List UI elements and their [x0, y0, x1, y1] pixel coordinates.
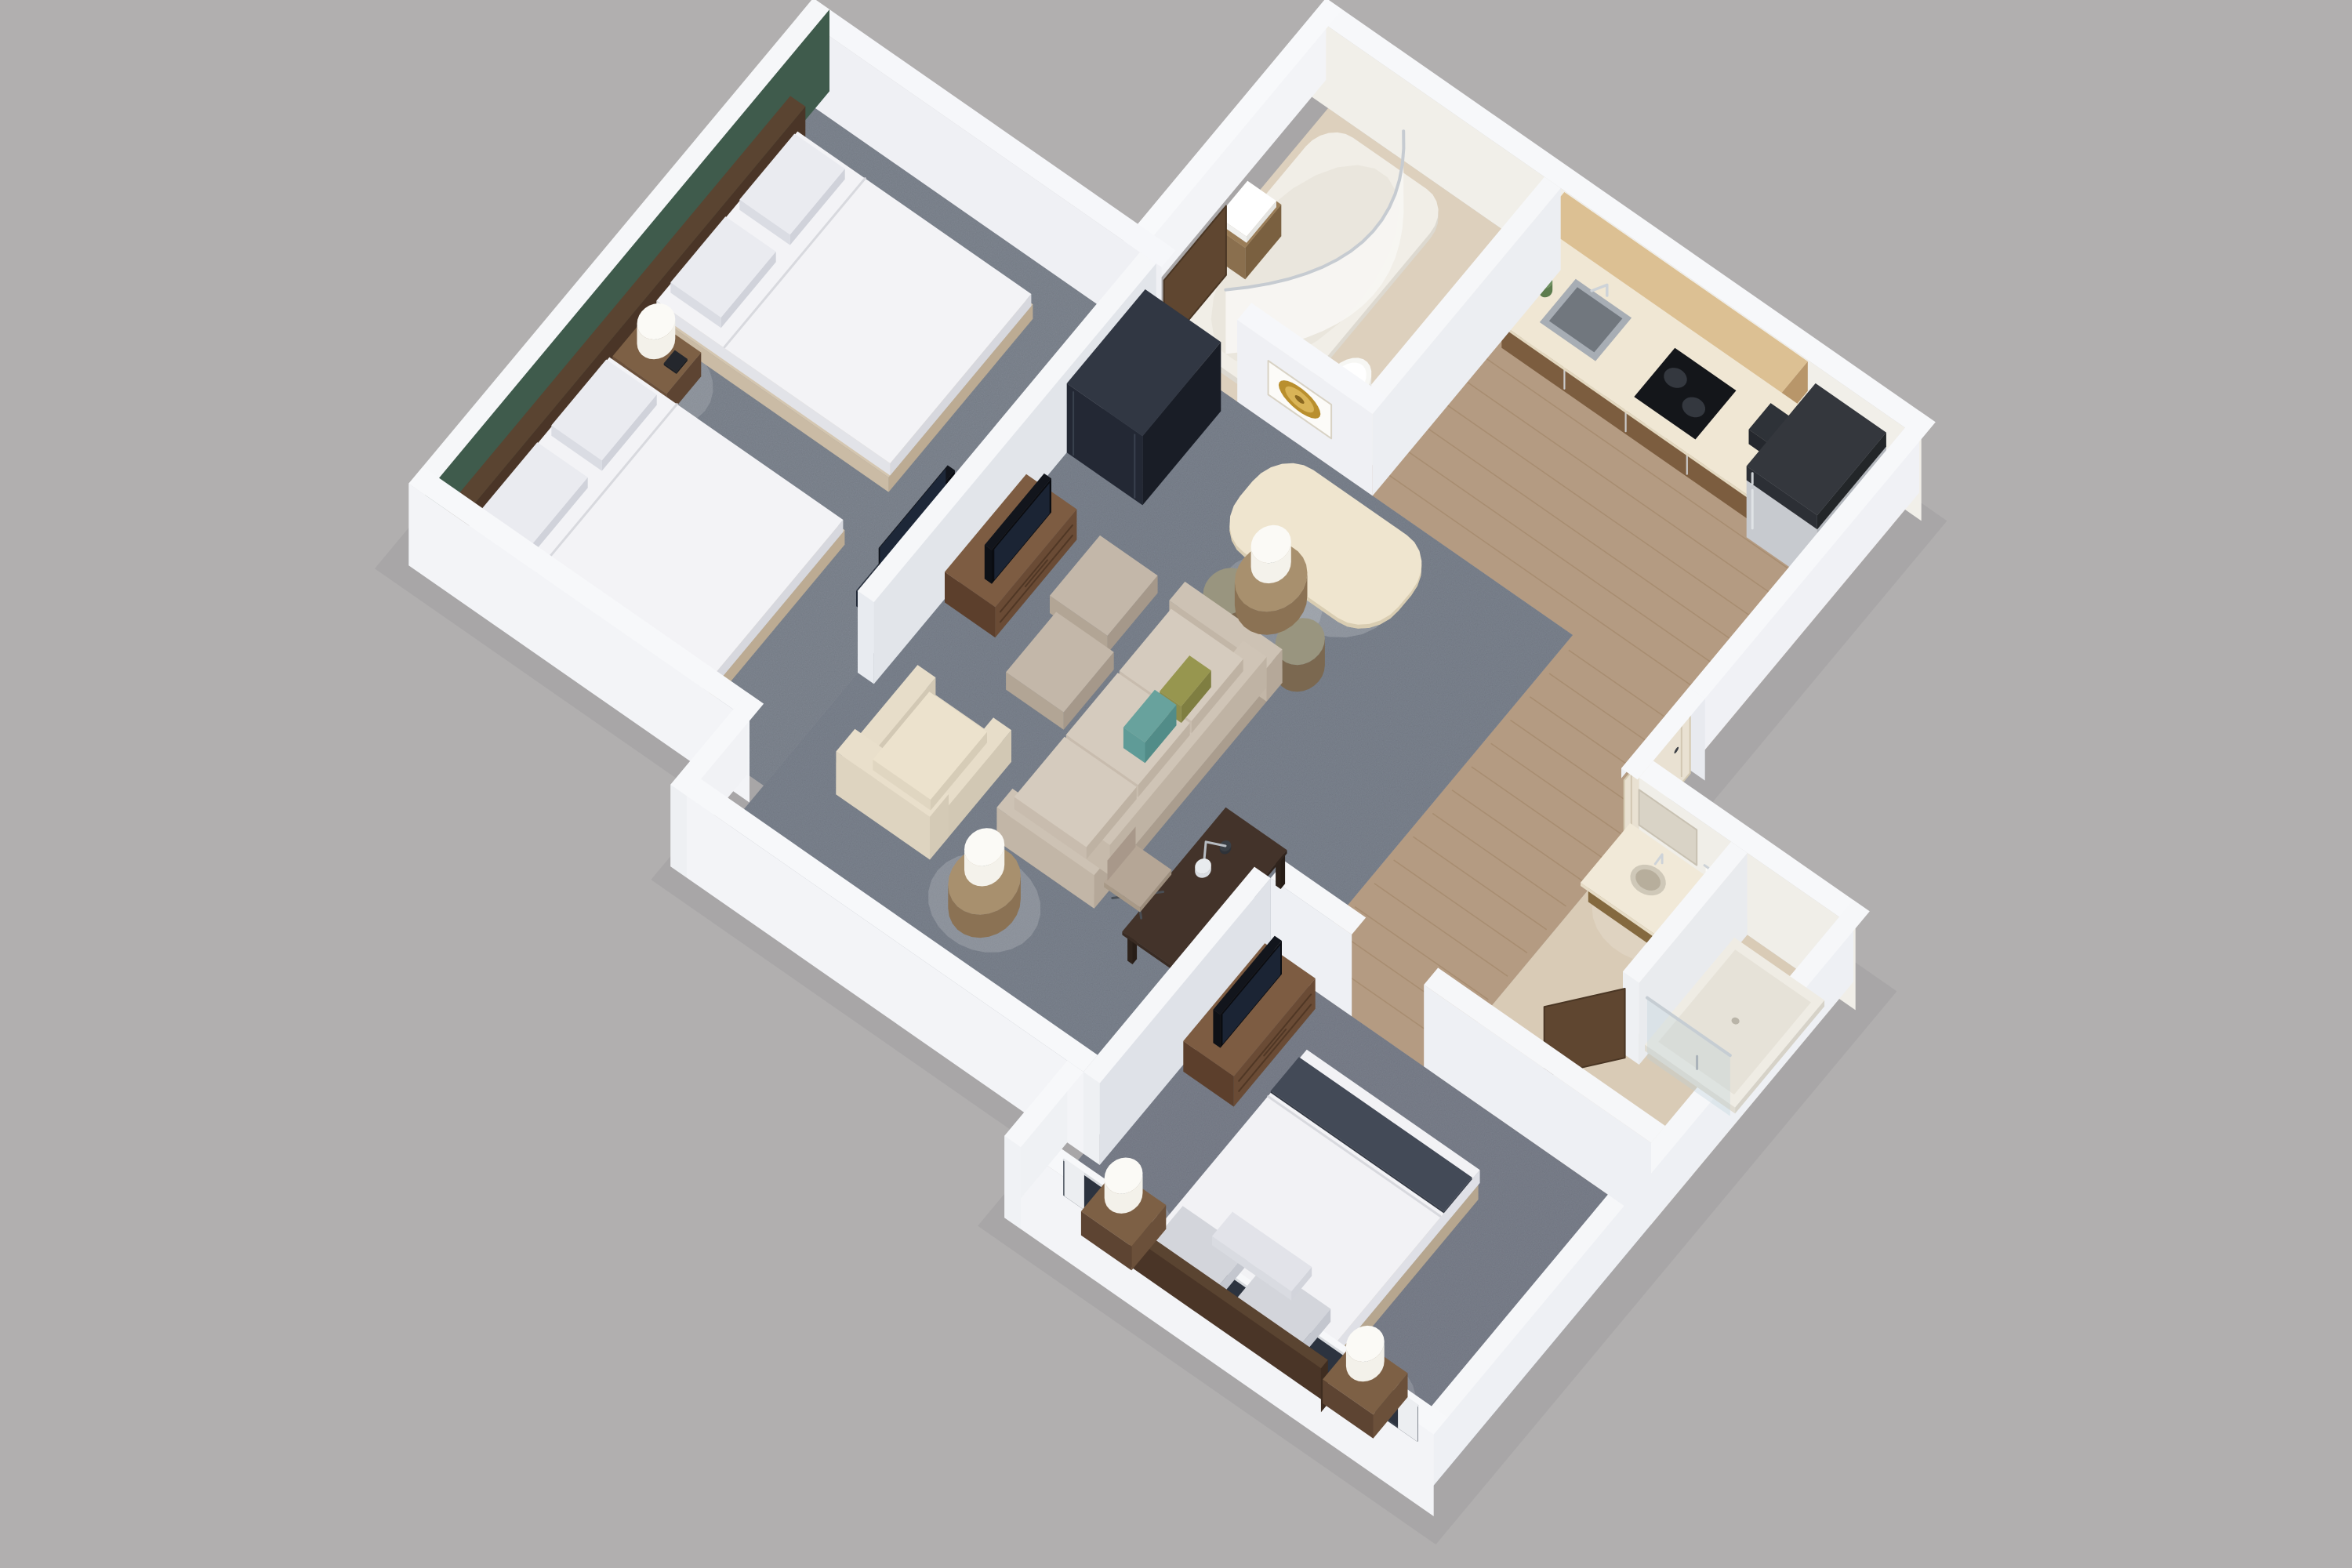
lamp-a-shade: [1251, 525, 1291, 583]
lamp-bedroom2-west-shade: [1105, 1158, 1143, 1214]
floorplan-image: [0, 0, 2352, 1568]
suite-scene: [375, 0, 1947, 1544]
lamp-bedroom1-shade: [637, 303, 676, 359]
floorplan-3d-render: [0, 0, 2352, 1568]
lamp-b-shade: [964, 828, 1004, 886]
lamp-bedroom2-east-shade: [1346, 1326, 1385, 1381]
